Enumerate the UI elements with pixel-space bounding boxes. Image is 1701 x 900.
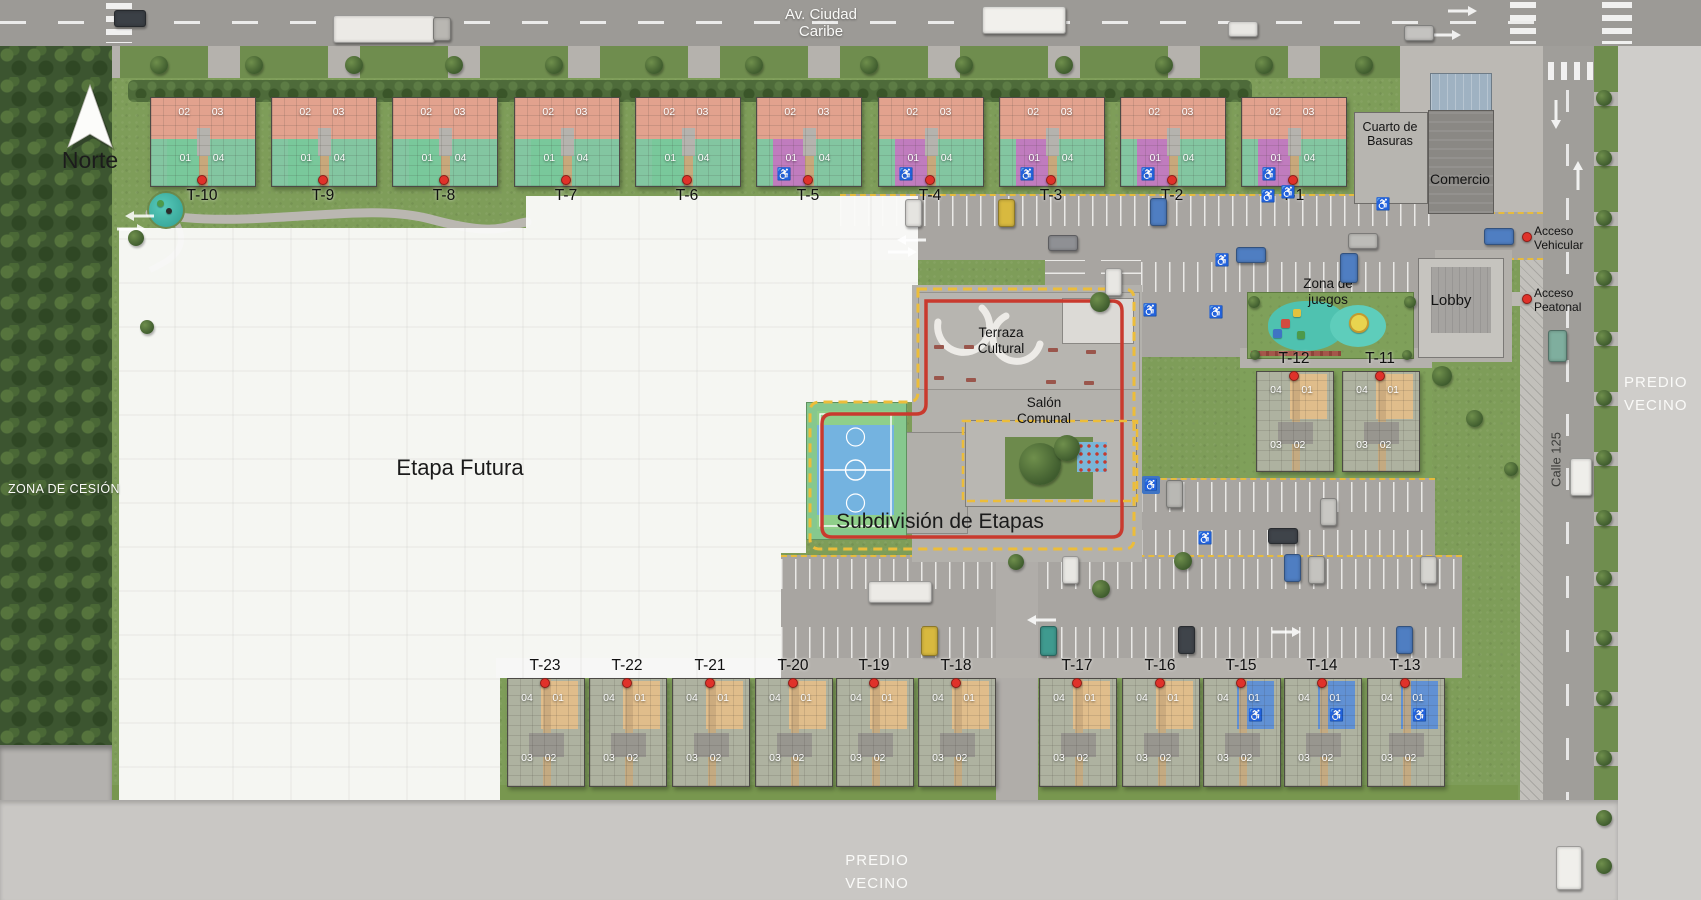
stair-core <box>318 128 332 156</box>
location-pin-t-5[interactable] <box>803 175 813 185</box>
unit-number: 01 <box>543 152 555 164</box>
unit-number: 04 <box>1270 384 1282 396</box>
location-pin-t-10[interactable] <box>197 175 207 185</box>
tower-label-t-21[interactable]: T-21 <box>694 657 725 675</box>
masterplan-canvas: Av. Ciudad Caribe Norte ZONA DE CESIÓN E… <box>0 0 1701 900</box>
unit-number: 04 <box>850 692 862 704</box>
car <box>1268 528 1298 544</box>
unit-number: 02 <box>793 752 805 764</box>
car <box>1062 556 1079 584</box>
car <box>982 6 1066 34</box>
unit-number: 03 <box>940 106 952 118</box>
tower-t-9[interactable]: 02030104 <box>271 97 377 187</box>
tree <box>445 56 463 74</box>
unit-number: 04 <box>1298 692 1310 704</box>
unit-number: 03 <box>769 752 781 764</box>
play-equipment <box>166 208 172 214</box>
location-pin-t-23[interactable] <box>540 678 550 688</box>
unit-number: 04 <box>1136 692 1148 704</box>
unit-number: 04 <box>1183 152 1195 164</box>
unit-number: 03 <box>576 106 588 118</box>
play-equipment <box>157 200 164 207</box>
stair-core <box>197 128 211 156</box>
predio-vecino-right-label: PREDIO VECINO <box>1624 372 1696 417</box>
handicap-stall-marking: ♿ <box>1261 189 1276 203</box>
subdivision-label: Subdivisión de Etapas <box>818 510 1062 534</box>
salon-pool-mosaic <box>1077 442 1107 472</box>
tower-t-3[interactable]: 02030104♿ <box>999 97 1105 187</box>
unit-number: 04 <box>1217 692 1229 704</box>
tree <box>1090 292 1110 312</box>
tree <box>245 56 263 74</box>
stair-core <box>1167 128 1181 156</box>
unit-number: 04 <box>1053 692 1065 704</box>
unit-number: 01 <box>1387 384 1399 396</box>
tower-label-t-17[interactable]: T-17 <box>1061 657 1092 675</box>
unit-number: 04 <box>941 152 953 164</box>
unit-number: 01 <box>552 692 564 704</box>
bench <box>934 376 944 380</box>
bench <box>964 345 974 349</box>
unit-number: 04 <box>521 692 533 704</box>
unit-number: 02 <box>874 752 886 764</box>
car <box>1166 480 1183 508</box>
tower-t-23[interactable]: 04010302 <box>507 678 585 787</box>
south-service-drive <box>996 560 1038 800</box>
play-equipment <box>1297 331 1305 339</box>
tree <box>645 56 663 74</box>
parking-stalls <box>1141 482 1435 512</box>
location-pin-t-22[interactable] <box>622 678 632 688</box>
unit-number: 02 <box>1322 752 1334 764</box>
tree <box>1596 858 1612 874</box>
unit-number: 01 <box>421 152 433 164</box>
crosswalk <box>1548 62 1594 80</box>
bench <box>934 345 944 349</box>
tree <box>128 230 144 246</box>
wheelchair-icon: ♿ <box>777 167 792 181</box>
car <box>114 10 146 27</box>
unit-number: 01 <box>1167 692 1179 704</box>
tree <box>1596 150 1612 166</box>
unit-number: 01 <box>1028 152 1040 164</box>
tower-label-t-6[interactable]: T-6 <box>676 187 698 205</box>
crosswalk <box>1510 2 1536 44</box>
tree <box>1504 462 1518 476</box>
tower-t-16[interactable]: 04010302 <box>1122 678 1200 787</box>
right-road-lane-dashes <box>1566 90 1569 830</box>
unit-number: 03 <box>603 752 615 764</box>
unit-number: 04 <box>932 692 944 704</box>
car <box>1284 554 1301 582</box>
car <box>998 199 1015 227</box>
location-pin-t-6[interactable] <box>682 175 692 185</box>
car <box>1556 846 1582 890</box>
acceso-vehicular-label: Acceso Vehicular <box>1534 224 1598 253</box>
courtyard-tree <box>1054 435 1080 461</box>
location-pin-t-15[interactable] <box>1236 678 1246 688</box>
tower-t-11[interactable]: 04010302 <box>1342 371 1420 472</box>
tree <box>1596 450 1612 466</box>
play-equipment <box>1281 319 1290 328</box>
tower-t-21[interactable]: 04010302 <box>672 678 750 787</box>
unit-number: 02 <box>299 106 311 118</box>
car <box>1178 626 1195 654</box>
north-label: Norte <box>42 147 138 173</box>
unit-number: 01 <box>717 692 729 704</box>
handicap-stall-marking: ♿ <box>1376 197 1391 211</box>
bench <box>1086 350 1096 354</box>
unit-number: 02 <box>420 106 432 118</box>
unit-number: 02 <box>178 106 190 118</box>
tree <box>345 56 363 74</box>
tower-label-t-14[interactable]: T-14 <box>1306 657 1337 675</box>
location-pin-t-4[interactable] <box>925 175 935 185</box>
tower-t-5[interactable]: 02030104♿ <box>756 97 862 187</box>
tree <box>1596 510 1612 526</box>
unit-number: 03 <box>932 752 944 764</box>
location-pin-t-14[interactable] <box>1317 678 1327 688</box>
calle-125-label: Calle 125 <box>1550 428 1565 490</box>
location-pin-t-8[interactable] <box>439 175 449 185</box>
unit-number: 01 <box>300 152 312 164</box>
unit-number: 02 <box>1405 752 1417 764</box>
right-planter-strip <box>1594 46 1618 900</box>
unit-number: 04 <box>577 152 589 164</box>
tower-label-t-10[interactable]: T-10 <box>186 187 217 205</box>
location-pin-t-20[interactable] <box>788 678 798 688</box>
tree <box>955 56 973 74</box>
tower-t-18[interactable]: 04010302 <box>918 678 996 787</box>
tree <box>1596 90 1612 106</box>
tower-t-20[interactable]: 04010302 <box>755 678 833 787</box>
location-pin-t-11[interactable] <box>1375 371 1385 381</box>
tower-t-10[interactable]: 02030104 <box>150 97 256 187</box>
unit-number: 04 <box>769 692 781 704</box>
unit-number: 02 <box>956 752 968 764</box>
wheelchair-icon: ♿ <box>1144 479 1158 492</box>
tower-label-t-13[interactable]: T-13 <box>1389 657 1420 675</box>
tree <box>545 56 563 74</box>
tree <box>1432 366 1452 386</box>
stair-core <box>561 128 575 156</box>
unit-number: 04 <box>213 152 225 164</box>
car <box>1150 198 1167 226</box>
acceso-vehicular-pin[interactable] <box>1522 232 1532 242</box>
tower-label-t-23[interactable]: T-23 <box>529 657 560 675</box>
wheelchair-icon: ♿ <box>1248 708 1263 722</box>
unit-number: 01 <box>963 692 975 704</box>
tower-label-t-18[interactable]: T-18 <box>940 657 971 675</box>
handicap-stall-marking: ♿ <box>1198 531 1213 545</box>
car <box>1420 556 1437 584</box>
forest-base-strip <box>0 745 112 805</box>
unit-number: 04 <box>1356 384 1368 396</box>
unit-number: 03 <box>212 106 224 118</box>
stair-core <box>682 128 696 156</box>
handicap-stall-marking: ♿ <box>1209 305 1224 319</box>
unit-number: 01 <box>179 152 191 164</box>
location-pin-t-7[interactable] <box>561 175 571 185</box>
tree <box>1596 270 1612 286</box>
location-pin-t-17[interactable] <box>1072 678 1082 688</box>
south-parking-lot <box>781 555 1462 672</box>
tree <box>1355 56 1373 74</box>
unit-number: 02 <box>1241 752 1253 764</box>
unit-number: 02 <box>1269 106 1281 118</box>
stair-core <box>803 128 817 156</box>
unit-number: 01 <box>881 692 893 704</box>
unit-number: 04 <box>819 152 831 164</box>
lobby-label: Lobby <box>1421 292 1481 309</box>
tower-t-22[interactable]: 04010302 <box>589 678 667 787</box>
bench <box>1084 381 1094 385</box>
unit-number: 04 <box>603 692 615 704</box>
unit-number: 01 <box>1329 692 1341 704</box>
wheelchair-icon: ♿ <box>1141 167 1156 181</box>
tree <box>1155 56 1173 74</box>
location-pin-t-12[interactable] <box>1289 371 1299 381</box>
car <box>1396 626 1413 654</box>
tree <box>745 56 763 74</box>
tower-label-t-11[interactable]: T-11 <box>1365 350 1395 368</box>
car <box>1340 253 1358 283</box>
unit-number: 04 <box>698 152 710 164</box>
bench <box>1046 380 1056 384</box>
tree <box>1596 690 1612 706</box>
car <box>1105 268 1122 296</box>
unit-number: 03 <box>1298 752 1310 764</box>
tree <box>1596 330 1612 346</box>
car <box>1484 228 1514 245</box>
car <box>1236 247 1266 263</box>
tower-t-13[interactable]: 04010302♿ <box>1367 678 1445 787</box>
acceso-peatonal-label: Acceso Peatonal <box>1534 286 1598 315</box>
tower-t-4[interactable]: 02030104♿ <box>878 97 984 187</box>
tower-label-t-12[interactable]: T-12 <box>1278 350 1309 368</box>
tower-label-t-22[interactable]: T-22 <box>611 657 642 675</box>
comercio-glass-roof <box>1430 73 1492 112</box>
tree <box>1466 410 1483 427</box>
unit-number: 01 <box>1270 152 1282 164</box>
tower-t-14[interactable]: 04010302♿ <box>1284 678 1362 787</box>
tree <box>860 56 878 74</box>
unit-number: 04 <box>455 152 467 164</box>
unit-number: 03 <box>1303 106 1315 118</box>
unit-number: 01 <box>634 692 646 704</box>
unit-number: 01 <box>800 692 812 704</box>
unit-number: 04 <box>1062 152 1074 164</box>
cuarto-basuras-label: Cuarto de Basuras <box>1354 120 1426 149</box>
tree <box>1250 350 1260 360</box>
car <box>1048 235 1078 251</box>
wheelchair-icon: ♿ <box>899 167 914 181</box>
handicap-stall-marking: ♿ <box>1281 185 1296 199</box>
tree <box>1008 554 1024 570</box>
location-pin-t-18[interactable] <box>951 678 961 688</box>
unit-number: 01 <box>1301 384 1313 396</box>
unit-number: 01 <box>785 152 797 164</box>
tower-label-t-19[interactable]: T-19 <box>858 657 889 675</box>
play-equipment <box>1293 309 1301 317</box>
tower-label-t-15[interactable]: T-15 <box>1225 657 1256 675</box>
tower-label-t-8[interactable]: T-8 <box>433 187 455 205</box>
tower-t-1[interactable]: 02030104♿ <box>1241 97 1347 187</box>
location-pin-t-1[interactable] <box>1288 175 1298 185</box>
unit-number: 02 <box>1148 106 1160 118</box>
unit-number: 03 <box>333 106 345 118</box>
salon-comunal-label: Salón Comunal <box>1000 395 1088 426</box>
unit-number: 02 <box>1380 439 1392 451</box>
location-pin-t-13[interactable] <box>1400 678 1410 688</box>
tower-label-t-9[interactable]: T-9 <box>312 187 334 205</box>
unit-number: 03 <box>818 106 830 118</box>
location-pin-t-21[interactable] <box>705 678 715 688</box>
tower-label-t-20[interactable]: T-20 <box>777 657 808 675</box>
car <box>1548 330 1567 362</box>
tower-t-8[interactable]: 02030104 <box>392 97 498 187</box>
tree <box>1174 552 1192 570</box>
unit-number: 03 <box>1182 106 1194 118</box>
unit-number: 02 <box>906 106 918 118</box>
tree <box>140 320 154 334</box>
tower-t-19[interactable]: 04010302 <box>836 678 914 787</box>
salon-comunal-building <box>965 420 1137 507</box>
tree <box>1596 810 1612 826</box>
unit-number: 02 <box>663 106 675 118</box>
tower-t-15[interactable]: 04010302♿ <box>1203 678 1281 787</box>
unit-number: 01 <box>1248 692 1260 704</box>
tree <box>1255 56 1273 74</box>
handicap-stall-marking: ♿ <box>1143 303 1158 317</box>
top-road-name: Av. Ciudad Caribe <box>762 6 880 41</box>
unit-number: 03 <box>1061 106 1073 118</box>
stair-core <box>925 128 939 156</box>
location-pin-t-2[interactable] <box>1167 175 1177 185</box>
car <box>1228 21 1258 37</box>
neighbor-lot-bottom <box>0 800 1618 900</box>
parking-stalls <box>781 627 1462 661</box>
car <box>1570 458 1592 496</box>
tree <box>1092 580 1110 598</box>
location-pin-t-3[interactable] <box>1046 175 1056 185</box>
tree <box>150 56 168 74</box>
unit-number: 03 <box>1053 752 1065 764</box>
car <box>921 626 938 656</box>
unit-number: 02 <box>545 752 557 764</box>
top-sidewalk <box>0 46 1543 78</box>
predio-vecino-bottom-label: PREDIO VECINO <box>820 850 934 895</box>
acceso-peatonal-pin[interactable] <box>1522 294 1532 304</box>
unit-number: 02 <box>710 752 722 764</box>
unit-number: 03 <box>1217 752 1229 764</box>
neighbor-lot-right <box>1618 46 1701 900</box>
etapa-futura-label: Etapa Futura <box>370 455 550 480</box>
unit-number: 03 <box>454 106 466 118</box>
wheelchair-icon: ♿ <box>1262 167 1277 181</box>
tree <box>1402 350 1412 360</box>
tree <box>1248 296 1260 308</box>
unit-number: 02 <box>1294 439 1306 451</box>
stair-core <box>1046 128 1060 156</box>
unit-number: 03 <box>697 106 709 118</box>
terraza-cultural-label: Terraza Cultural <box>959 325 1043 356</box>
stair-core <box>439 128 453 156</box>
tower-t-12[interactable]: 04010302 <box>1256 371 1334 472</box>
unit-number: 03 <box>1270 439 1282 451</box>
location-pin-t-19[interactable] <box>869 678 879 688</box>
unit-number: 02 <box>1077 752 1089 764</box>
unit-number: 03 <box>850 752 862 764</box>
unit-number: 04 <box>1304 152 1316 164</box>
play-equipment <box>1273 329 1282 338</box>
unit-number: 03 <box>1381 752 1393 764</box>
handicap-stall-marking: ♿ <box>1215 253 1230 267</box>
location-pin-t-16[interactable] <box>1155 678 1165 688</box>
unit-number: 03 <box>521 752 533 764</box>
tower-t-6[interactable]: 02030104 <box>635 97 741 187</box>
bench <box>1048 348 1058 352</box>
tower-t-7[interactable]: 02030104 <box>514 97 620 187</box>
unit-number: 03 <box>1356 439 1368 451</box>
car <box>1308 556 1325 584</box>
handicap-stall-marking: ♿ <box>1142 476 1160 494</box>
unit-number: 04 <box>686 692 698 704</box>
unit-number: 02 <box>1160 752 1172 764</box>
unit-number: 01 <box>1084 692 1096 704</box>
tower-label-t-7[interactable]: T-7 <box>555 187 577 205</box>
stair-core <box>1288 128 1302 156</box>
tree <box>1596 570 1612 586</box>
tower-label-t-5[interactable]: T-5 <box>797 187 819 205</box>
tree <box>1055 56 1073 74</box>
car <box>1040 626 1057 656</box>
wheelchair-icon: ♿ <box>1020 167 1035 181</box>
play-carousel <box>1349 313 1369 333</box>
car <box>1348 233 1378 249</box>
unit-number: 04 <box>334 152 346 164</box>
car <box>1320 498 1337 526</box>
unit-number: 01 <box>664 152 676 164</box>
unit-number: 03 <box>1136 752 1148 764</box>
unit-number: 02 <box>1027 106 1039 118</box>
unit-number: 01 <box>907 152 919 164</box>
car <box>333 15 435 43</box>
unit-number: 02 <box>627 752 639 764</box>
crosswalk <box>1602 2 1632 44</box>
unit-number: 01 <box>1149 152 1161 164</box>
tower-label-t-16[interactable]: T-16 <box>1144 657 1175 675</box>
unit-number: 03 <box>686 752 698 764</box>
unit-number: 04 <box>1381 692 1393 704</box>
unit-number: 02 <box>542 106 554 118</box>
car <box>1404 25 1434 41</box>
tower-label-t-3[interactable]: T-3 <box>1040 187 1062 205</box>
tree <box>1596 210 1612 226</box>
tower-label-t-4[interactable]: T-4 <box>919 187 941 205</box>
comercio-building <box>1428 110 1494 214</box>
location-pin-t-9[interactable] <box>318 175 328 185</box>
tree <box>1596 630 1612 646</box>
zona-cesion-label: ZONA DE CESIÓN <box>8 482 120 496</box>
car <box>905 199 922 227</box>
tower-t-17[interactable]: 04010302 <box>1039 678 1117 787</box>
comercio-label: Comercio <box>1426 171 1494 187</box>
tower-t-2[interactable]: 02030104♿ <box>1120 97 1226 187</box>
wheelchair-icon: ♿ <box>1412 708 1427 722</box>
bench <box>966 378 976 382</box>
pocket-playground <box>147 191 185 229</box>
